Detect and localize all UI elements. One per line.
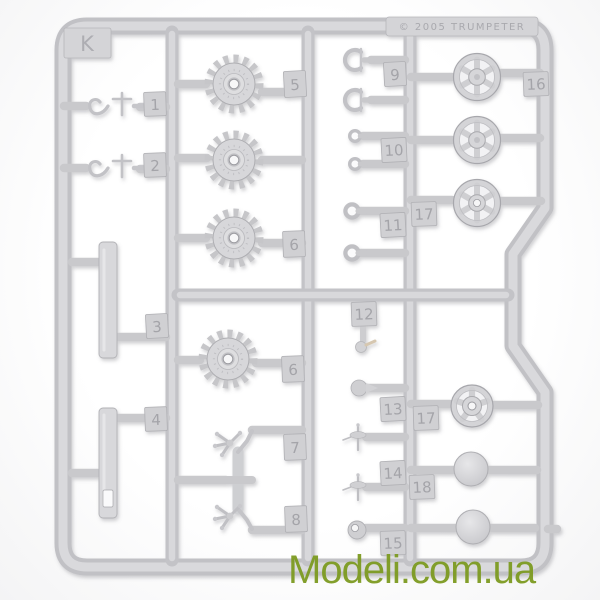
- copyright-plate: © 2005 TRUMPETER: [386, 17, 538, 36]
- svg-text:11: 11: [383, 216, 403, 235]
- svg-text:10: 10: [384, 141, 404, 160]
- part-tag-17a: 17: [411, 202, 437, 227]
- svg-text:9: 9: [390, 66, 400, 84]
- ball-part-13: [351, 380, 378, 396]
- part-tag-14: 14: [380, 460, 406, 485]
- svg-text:7: 7: [290, 439, 300, 457]
- antenna-part-14a: [343, 423, 366, 450]
- road-wheel-part-16: [454, 54, 501, 101]
- part-tag-3: 3: [145, 313, 168, 338]
- tow-hook-part-1: [90, 93, 146, 115]
- part-tag-16: 16: [523, 72, 549, 97]
- svg-text:18: 18: [412, 478, 432, 497]
- bar-part-3: [99, 242, 117, 358]
- part-tag-2: 2: [144, 153, 167, 178]
- part-tag-13: 13: [380, 396, 406, 421]
- svg-text:2: 2: [150, 157, 160, 175]
- svg-text:17: 17: [414, 205, 434, 224]
- sprue-letter: K: [80, 32, 95, 56]
- bracket-part-8: [213, 504, 242, 530]
- part-tag-11: 11: [380, 212, 406, 237]
- road-wheel-part-17a: [454, 180, 501, 227]
- svg-text:8: 8: [291, 511, 301, 529]
- part-tag-4: 4: [145, 407, 168, 432]
- part-tag-6a: 6: [283, 231, 306, 258]
- dome-part-18b: [456, 510, 490, 544]
- idler-wheel-part-17b: [451, 385, 493, 427]
- part-tag-12: 12: [351, 302, 377, 327]
- part-tag-18: 18: [409, 475, 435, 500]
- part-tag-6b: 6: [282, 356, 305, 383]
- part-tag-7: 7: [284, 434, 307, 461]
- part-tag-8: 8: [285, 506, 308, 533]
- svg-text:4: 4: [151, 411, 161, 429]
- copyright-text: © 2005 TRUMPETER: [399, 22, 526, 33]
- sprue-letter-tab: K: [64, 28, 111, 58]
- sprocket-wheel-part-6a: [209, 213, 260, 264]
- antenna-part-14b: [343, 473, 366, 500]
- road-wheel-unnumbered: [454, 117, 501, 164]
- sprocket-wheel-part-6b: [203, 334, 254, 385]
- sprue-photo: © 2005 TRUMPETER K: [0, 0, 600, 600]
- bar-part-4: [99, 408, 117, 518]
- svg-text:5: 5: [290, 76, 300, 94]
- dome-part-18a: [454, 452, 488, 486]
- sprocket-wheel-unnumbered: [209, 135, 260, 186]
- socket-part-15: [348, 521, 366, 539]
- watermark-text: Modeli.com.ua: [288, 548, 535, 592]
- shackle-part-9a: [345, 49, 372, 71]
- svg-text:14: 14: [383, 464, 403, 483]
- sprue-frame: © 2005 TRUMPETER K: [63, 17, 557, 567]
- part-tag-10: 10: [381, 137, 407, 162]
- svg-text:6: 6: [288, 361, 298, 379]
- svg-text:17: 17: [416, 409, 436, 428]
- photo-canvas: © 2005 TRUMPETER K: [0, 0, 600, 600]
- part-tag-1: 1: [144, 92, 167, 117]
- part-tag-17b: 17: [413, 406, 439, 431]
- knob-part-12: [356, 327, 376, 353]
- svg-text:3: 3: [152, 318, 162, 336]
- svg-text:16: 16: [526, 75, 546, 94]
- part-tag-5: 5: [283, 70, 306, 97]
- sprocket-wheel-part-5: [209, 59, 260, 110]
- eyelet-part-11b: [345, 246, 365, 259]
- svg-text:13: 13: [383, 400, 403, 419]
- svg-text:6: 6: [289, 236, 299, 254]
- svg-text:1: 1: [150, 96, 160, 114]
- tow-hook-part-2: [90, 155, 146, 177]
- eyelet-part-11a: [345, 204, 365, 217]
- shackle-part-9b: [345, 89, 372, 111]
- part-tag-9: 9: [383, 61, 406, 86]
- svg-text:12: 12: [354, 305, 374, 324]
